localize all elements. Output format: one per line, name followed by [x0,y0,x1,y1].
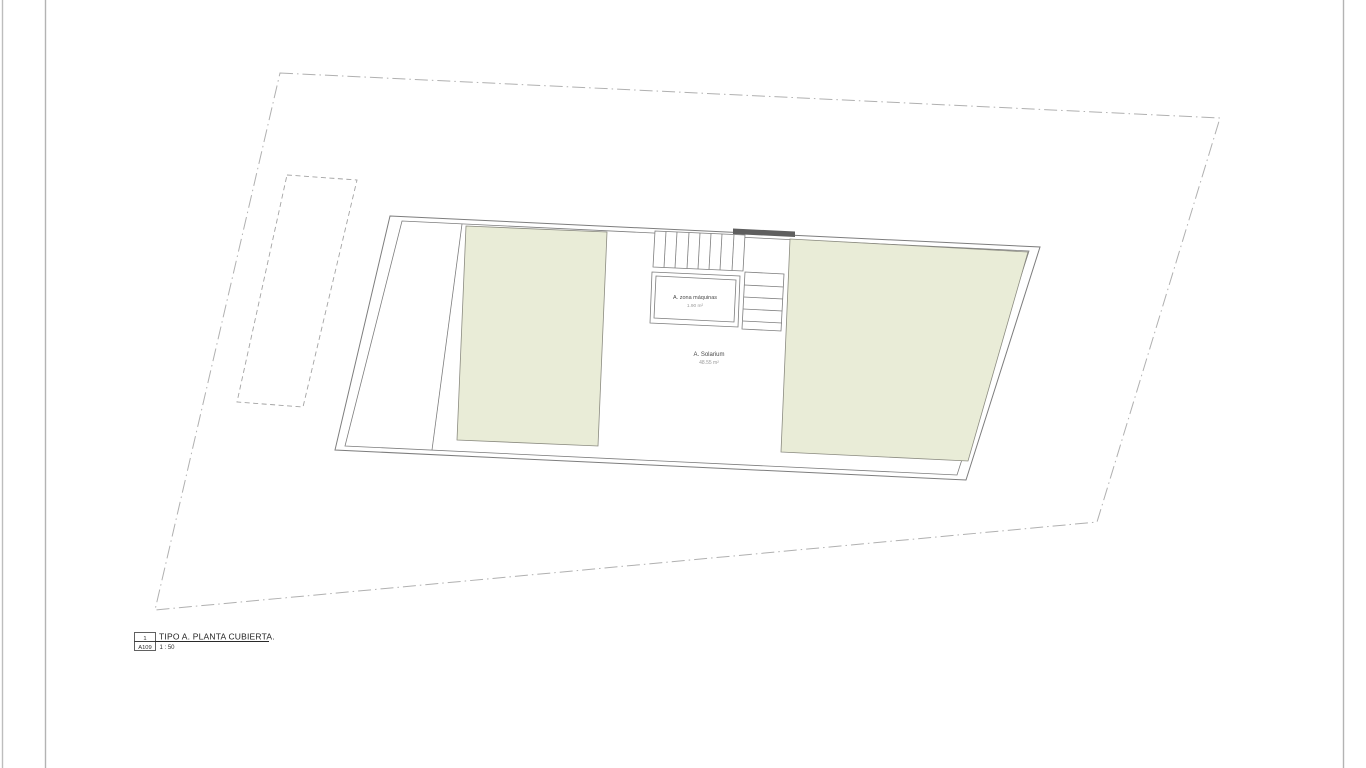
drawing-scale: 1 : 50 [160,645,176,651]
sheet-number: A109 [138,645,152,651]
machine-room-label: A. zona máquinas [673,295,717,301]
roof-area-left [457,226,607,446]
detail-number: 1 [143,636,146,642]
drawing-title: TIPO A. PLANTA CUBIERTA. [159,632,275,642]
machine-room-area: 1.90 m² [687,303,704,309]
parking-space-outline [237,175,357,407]
solarium-area: 48.55 m² [699,360,719,366]
floor-plan-canvas: A. zona máquinas 1.90 m² A. Solarium 48.… [0,0,1366,768]
title-block: 1 A109 TIPO A. PLANTA CUBIERTA. 1 : 50 [135,632,275,652]
solarium-label: A. Solarium [693,352,724,358]
roof-area-right [781,239,1028,461]
